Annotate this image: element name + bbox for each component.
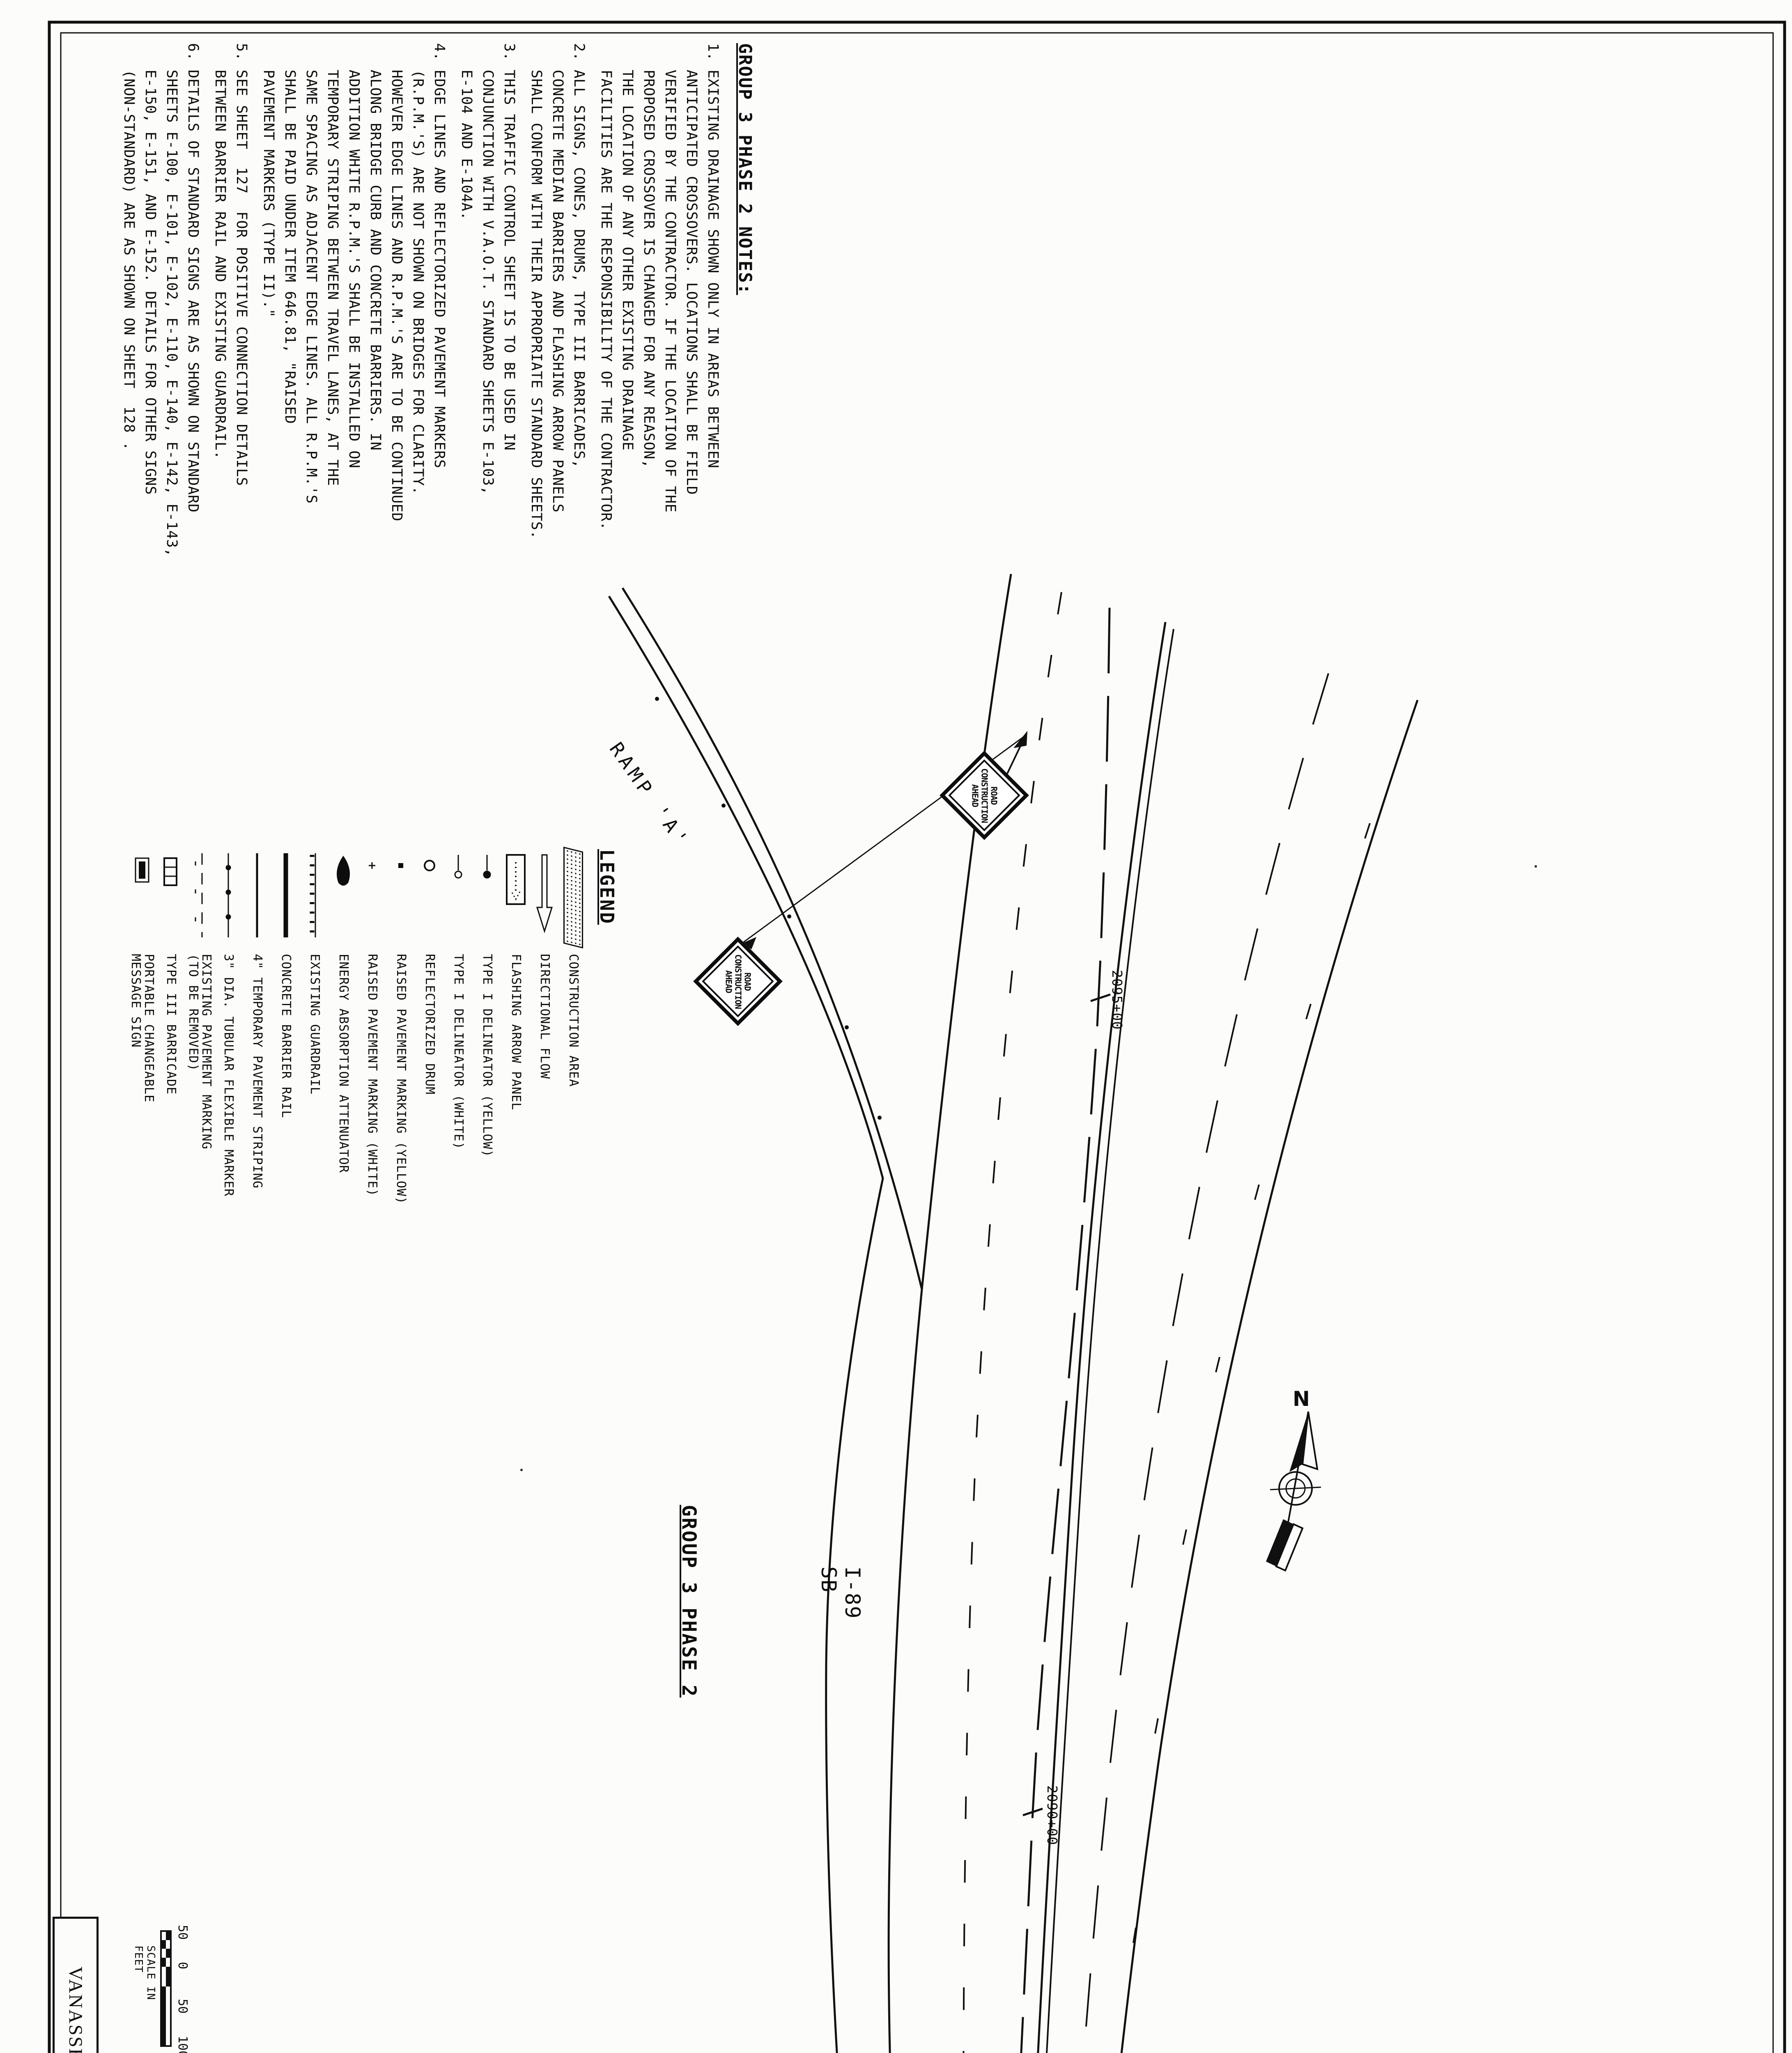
existing-pavement-marking-symbol	[188, 849, 211, 954]
construction-area-symbol	[563, 849, 583, 954]
legend-item-construction-area: CONSTRUCTION AREA	[559, 849, 588, 1210]
legend-item-rpm-white: RAISED PAVEMENT MARKING (WHITE)	[358, 849, 386, 1210]
station-label-2090: 2090+00	[1044, 1785, 1060, 1845]
legend-item-portable-message-sign: PORTABLE CHANGEABLE MESSAGE SIGN	[128, 849, 156, 1210]
north-label: N	[1293, 1387, 1310, 1411]
scale-tick-50-top: 50	[174, 1925, 190, 1958]
scale-tick-100: 100	[174, 2036, 190, 2053]
type-1-delineator-yellow-symbol	[476, 849, 499, 954]
north-arrow	[1266, 1412, 1321, 1571]
station-label-2095: 2095+00	[1109, 970, 1125, 1029]
note-item-4: 4. EDGE LINES AND REFLECTORIZED PAVEMENT…	[258, 43, 450, 597]
legend-title: LEGEND	[596, 849, 618, 1210]
legend-item-type1-delineator-yellow: TYPE I DELINEATOR (YELLOW)	[473, 849, 501, 1210]
legend-item-existing-pavement-marking: EXISTING PAVEMENT MARKING (TO BE REMOVED…	[185, 849, 214, 1210]
legend-item-type1-delineator-white: TYPE I DELINEATOR (WHITE)	[444, 849, 473, 1210]
temporary-pavement-striping-symbol	[246, 849, 269, 954]
notes-title: GROUP 3 PHASE 2 NOTES:	[734, 43, 756, 597]
raised-pavement-marking-yellow-symbol	[389, 849, 412, 954]
note-item-3: 3. THIS TRAFFIC CONTROL SHEET IS TO BE U…	[456, 43, 520, 597]
note-item-1: 1. EXISTING DRAINAGE SHOWN ONLY IN AREAS…	[595, 43, 724, 597]
legend-item-temporary-striping: 4" TEMPORARY PAVEMENT STRIPING	[243, 849, 271, 1210]
legend-block: LEGEND CONSTRUCTION AREA DIRECTIONAL FLO…	[123, 849, 618, 1210]
directional-flow-arrow	[533, 849, 556, 954]
firm-name: VANASSE HANGEN BRUSTLIN, INC.	[64, 1966, 87, 2053]
raised-pavement-marking-white-symbol	[361, 849, 384, 954]
legend-item-concrete-barrier-rail: CONCRETE BARRIER RAIL	[271, 849, 300, 1210]
drawing-sheet: GROUP 3 PHASE 2 NOTES: 1. EXISTING DRAIN…	[0, 0, 1792, 2053]
legend-item-tubular-marker: 3" DIA. TUBULAR FLEXIBLE MARKER	[214, 849, 243, 1210]
legend-item-reflectorized-drum: REFLECTORIZED DRUM	[415, 849, 444, 1210]
scale-caption: SCALE IN FEET	[143, 1945, 157, 2034]
ramp-delineator-dots	[655, 697, 882, 1120]
type-1-delineator-white-symbol	[447, 849, 470, 954]
scale-bar	[161, 1931, 171, 2046]
road-construction-sign-1-text: ROAD CONSTRUCTION AHEAD	[970, 768, 999, 823]
portable-changeable-message-sign-symbol	[131, 849, 154, 954]
station-ticks	[988, 994, 1110, 2053]
scale-tick-0: 0	[174, 1962, 190, 1986]
existing-guardrail-symbol	[303, 849, 326, 954]
nb-right-edge	[1084, 700, 1418, 2053]
scan-specks	[520, 865, 1537, 2053]
leader-arrowhead	[1013, 731, 1027, 748]
firm-name-box: VANASSE HANGEN BRUSTLIN, INC.	[53, 1917, 99, 2053]
legend-item-flashing-arrow-panel: FLASHING ARROW PANEL	[501, 849, 530, 1210]
note-item-2: 2. ALL SIGNS, CONES, DRUMS, TYPE III BAR…	[526, 43, 590, 597]
reflectorized-drum-symbol	[418, 849, 441, 954]
legend-item-type3-barricade: TYPE III BARRICADE	[156, 849, 185, 1210]
delineator-ticks	[1116, 823, 1370, 2053]
legend-item-attenuator: ENERGY ABSORPTION ATTENUATOR	[329, 849, 358, 1210]
flashing-arrow-panel-symbol	[504, 849, 527, 954]
note-item-6: 6. DETAILS OF STANDARD SIGNS ARE AS SHOW…	[118, 43, 204, 597]
concrete-barrier-rail-symbol	[274, 849, 297, 954]
road-construction-sign-2-text: ROAD CONSTRUCTION AHEAD	[724, 954, 752, 1009]
legend-item-directional-flow: DIRECTIONAL FLOW	[530, 849, 559, 1210]
legend-item-existing-guardrail: EXISTING GUARDRAIL	[300, 849, 329, 1210]
tubular-flexible-marker-symbol	[217, 849, 240, 954]
legend-item-rpm-yellow: RAISED PAVEMENT MARKING (YELLOW)	[386, 849, 415, 1210]
notes-block: GROUP 3 PHASE 2 NOTES: 1. EXISTING DRAIN…	[117, 43, 756, 597]
phase-label: GROUP 3 PHASE 2	[669, 1505, 700, 1698]
nb-centerline	[1059, 673, 1328, 2053]
energy-absorption-attenuator-symbol	[332, 849, 355, 954]
route-label: I-89 SB	[834, 1566, 864, 1647]
type-3-barricade-symbol	[159, 849, 182, 954]
note-item-5: 5. SEE SHEET 127 FOR POSITIVE CONNECTION…	[209, 43, 252, 597]
scale-tick-50-bottom: 50	[174, 1999, 190, 2032]
